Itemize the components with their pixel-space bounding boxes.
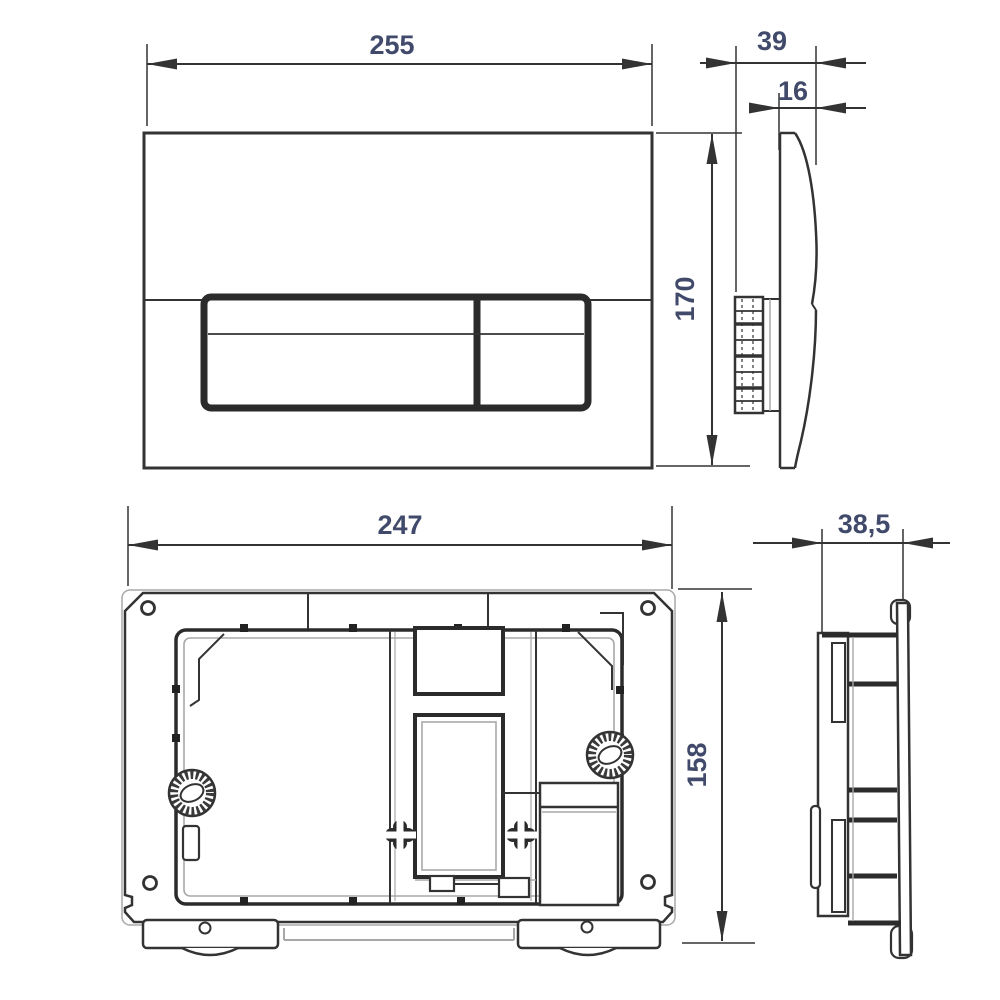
adjuster-knob-right — [587, 732, 633, 778]
frame-rear-view: 247 — [122, 506, 675, 955]
plate-side-view: 39 16 170 — [656, 26, 866, 468]
valve-window-main — [415, 715, 503, 877]
technical-drawing-page: 255 39 16 — [0, 0, 1000, 1000]
dim-plate-thickness: 16 — [749, 76, 866, 150]
screw-hole-top-right — [642, 602, 655, 615]
dim-label-frame-height: 158 — [682, 742, 712, 787]
dim-label-plate-depth: 39 — [757, 26, 787, 56]
flush-buttons — [204, 297, 588, 408]
adjuster-knob-left — [169, 770, 215, 816]
frame-side-flange — [891, 600, 912, 958]
frame-right-box — [540, 783, 618, 905]
frame-side-view: 38,5 158 — [678, 509, 950, 958]
dim-frame-depth: 38,5 — [753, 509, 950, 632]
screw-hole-top-left — [142, 602, 155, 615]
dim-frame-height: 158 — [678, 589, 755, 943]
frame-foot-right — [518, 920, 660, 955]
dim-label-frame-width: 247 — [377, 510, 422, 540]
frame-bottom-rail — [284, 928, 514, 940]
dim-plate-depth: 39 — [700, 26, 866, 292]
screw-hole-bottom-left — [144, 877, 157, 890]
frame-foot-left — [143, 920, 278, 955]
plate-front-view: 255 — [144, 30, 652, 468]
dim-label-plate-width: 255 — [369, 30, 414, 60]
dim-label-frame-depth: 38,5 — [838, 509, 891, 539]
frame-left-slot — [183, 826, 199, 860]
dim-label-plate-height: 170 — [670, 276, 700, 321]
valve-window-top — [415, 628, 503, 694]
frame-side-body — [811, 633, 901, 923]
drawing-canvas: 255 39 16 — [0, 0, 1000, 1000]
dim-plate-width: 255 — [147, 30, 652, 126]
dim-frame-width: 247 — [128, 506, 672, 589]
screw-hole-bottom-right — [642, 876, 655, 889]
plate-profile — [780, 133, 817, 468]
dim-label-plate-thickness: 16 — [778, 76, 808, 106]
actuator-boss-side — [735, 297, 780, 413]
